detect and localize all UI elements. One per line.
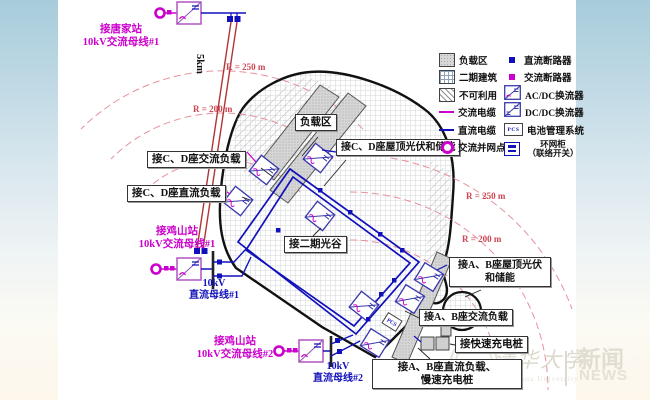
legend-label: AC/DC换流器 [525,88,584,102]
fast-charger-box [436,337,449,350]
label-phase2: 接二期光谷 [284,236,347,253]
legend-label: DC/DC换流器 [525,105,584,119]
radius-label: R = 250 m [226,62,265,72]
unusable-icon [439,88,455,102]
bus-name: 直流母线#2 [308,373,368,385]
legend-label: 直流电缆 [458,123,496,137]
legend-right-column: 直流断路器 交流断路器 AC/DC换流器 DC/DC换流器 PCS 电池管理系统… [504,51,584,159]
dc-bus2-label: 10kV 直流母线#2 [308,361,368,385]
legend-label: 环网柜 （联络开关） [524,140,582,158]
station-label-tangjia: 接唐家站 10kV交流母线#1 [60,24,182,49]
label-fast-charge: 接快速充电桩 [455,336,528,353]
acdc-converter-icon [299,340,323,362]
dc-breaker [379,292,384,297]
station-label-jishan2: 接鸡山站 10kV交流母线#2 [180,336,290,361]
legend-label-line: （联络开关） [524,149,582,158]
label-cd-dc-load: 接C、D座直流负载 [127,185,226,202]
label-line: 和储能 [454,272,546,285]
pcs-icon: PCS [504,123,523,136]
ac-breaker [170,266,175,271]
ring-main-unit-icon [504,142,520,156]
ac-breaker [293,348,298,353]
dc-breaker [318,188,323,193]
station-bus: 10kV交流母线#2 [180,349,290,362]
legend-item-acdc-converter: AC/DC换流器 [504,86,584,104]
label-load-area: 负载区 [295,114,337,131]
legend-item-load-area: 负载区 [439,51,506,69]
phase2-building-icon [439,70,455,84]
legend-label: 负载区 [459,53,488,67]
watermark-divider [565,351,567,386]
legend-item-bms: PCS 电池管理系统 [504,121,584,139]
legend-item-unusable: 不可利用 [439,86,506,104]
legend-item-ac-breaker: 交流断路器 [504,69,584,87]
label-ab-dc-load: 接A、B座直流负载、 慢速充电桩 [372,359,522,389]
legend-item-dc-breaker: 直流断路器 [504,51,584,69]
dc-breaker [392,278,397,283]
dc-breaker-icon [509,57,515,63]
station-bus: 10kV交流母线#1 [60,37,182,50]
label-line: 接A、B座屋顶光伏 [454,259,546,272]
bus-name: 直流母线#1 [186,290,242,302]
slide: PCS [0,0,650,400]
ac-breaker [164,266,169,271]
dc-breaker [235,16,241,22]
legend-item-rmu: 环网柜 （联络开关） [504,139,584,159]
label-line: 慢速充电桩 [377,374,517,387]
legend-label: 二期建筑 [459,70,497,84]
ac-breaker-icon [509,74,515,80]
radius-label: R = 200 m [193,104,232,114]
dc-breaker [227,16,233,22]
legend-label: 直流断路器 [524,53,572,67]
bus-voltage: 10kV [308,361,368,373]
news-logo-en: NEWS [579,367,628,384]
station-bus: 10kV交流母线#1 [122,239,232,252]
legend-left-column: 负载区 二期建筑 不可利用 交流电缆 直流电缆 交流并网点 [439,51,506,156]
pcc-icon [152,265,161,274]
dc-breaker [366,317,371,322]
radius-label: R = 200 m [462,234,501,244]
pcc-icon [441,141,454,154]
grid-tie-tangjia [156,2,247,24]
fast-charger-box [441,326,451,336]
fast-charger-box [421,337,434,350]
pcc-icon [156,9,165,18]
legend-item-ac-cable: 交流电缆 [439,104,506,122]
legend-item-phase2-building: 二期建筑 [439,69,506,87]
dc-breaker [276,228,281,233]
dc-breaker [348,210,353,215]
station-name: 接鸡山站 [180,336,290,349]
dc-breaker [335,338,340,343]
radius-label: R = 250 m [466,191,505,201]
dc-bus1-label: 10kV 直流母线#1 [186,278,242,302]
legend-label: 电池管理系统 [527,123,584,137]
legend-label: 不可利用 [459,88,497,102]
legend-item-pcc: 交流并网点 [439,139,506,157]
label-cd-ac-load: 接C、D座交流负载 [147,151,246,168]
label-ab-pv-storage: 接A、B座屋顶光伏 和储能 [449,257,551,287]
legend-label: 交流并网点 [458,140,506,154]
dc-cable-icon [439,129,454,131]
label-ab-ac-load: 接A、B座交流负载 [419,309,513,326]
bus-voltage: 10kV [186,278,242,290]
station-name: 接唐家站 [60,24,182,37]
legend-item-dcdc-converter: DC/DC换流器 [504,104,584,122]
dcdc-converter-icon [504,102,521,122]
dc-breaker [378,232,383,237]
acdc-converter-icon [177,258,201,280]
ac-cable-icon [439,111,454,113]
distance-label: 5km [194,54,205,74]
station-name: 接鸡山站 [122,226,232,239]
legend-item-dc-cable: 直流电缆 [439,121,506,139]
label-line: 接A、B座直流负载、 [377,361,517,374]
ac-breaker [167,10,172,15]
legend-label: 交流电缆 [458,105,496,119]
legend-label: 交流断路器 [524,70,572,84]
acdc-converter-icon [177,2,201,24]
dc-breaker [337,349,342,354]
dc-breaker [400,248,405,253]
dc-breaker [217,260,222,265]
station-label-jishan1: 接鸡山站 10kV交流母线#1 [122,226,232,251]
load-area-icon [439,53,455,67]
